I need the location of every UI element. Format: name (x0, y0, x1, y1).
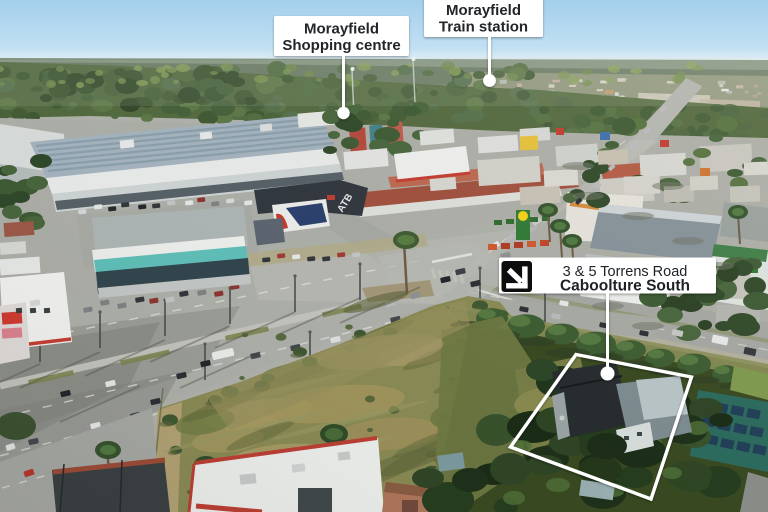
svg-text:Caboolture South: Caboolture South (560, 278, 690, 295)
svg-text:Morayfield: Morayfield (446, 2, 521, 19)
svg-text:Train station: Train station (439, 19, 528, 36)
svg-text:Shopping centre: Shopping centre (282, 37, 400, 54)
svg-text:Morayfield: Morayfield (304, 21, 379, 38)
